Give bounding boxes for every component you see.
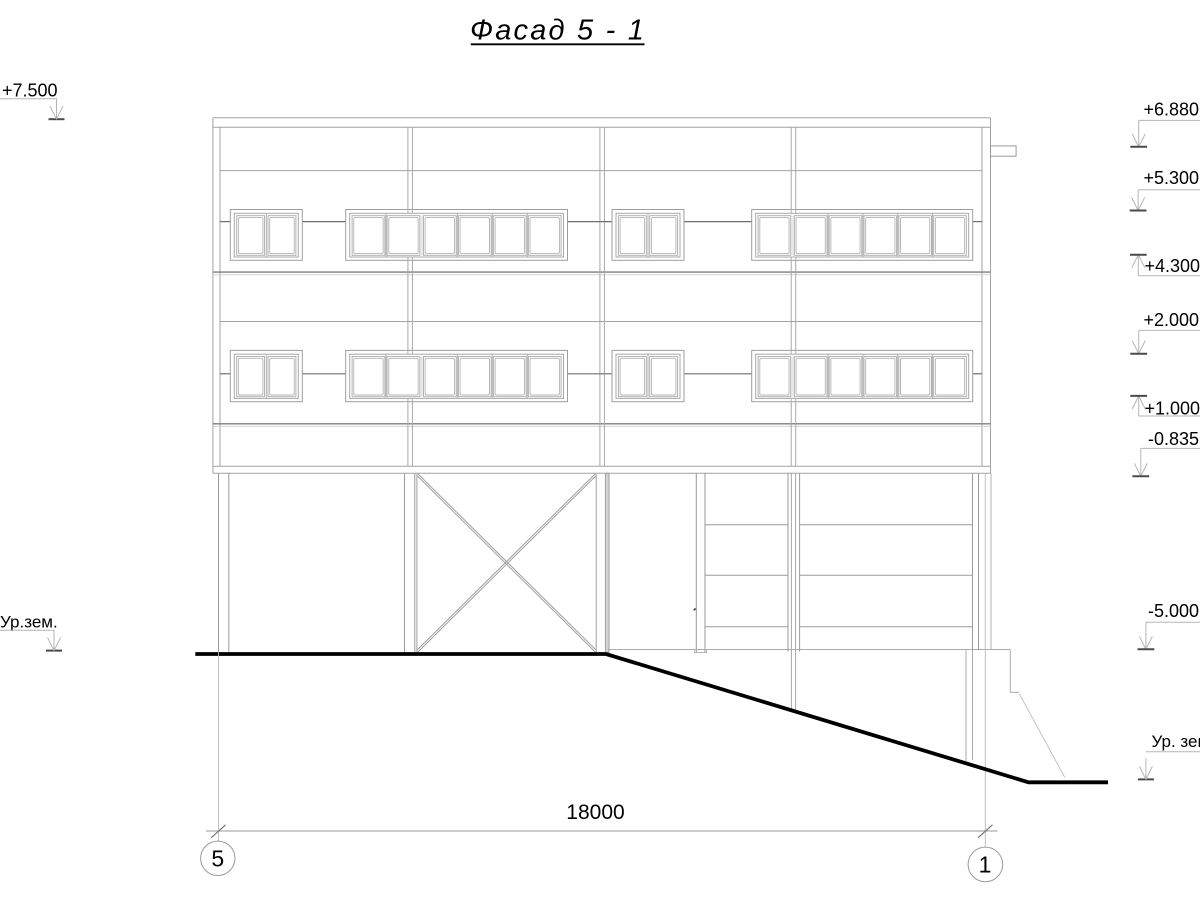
svg-text:Ур. земли: Ур. земли bbox=[1152, 732, 1200, 751]
svg-text:+4.300: +4.300 bbox=[1144, 256, 1200, 276]
svg-text:18000: 18000 bbox=[566, 801, 624, 824]
svg-text:Ур.зем.: Ур.зем. bbox=[0, 613, 58, 632]
svg-text:+2.000: +2.000 bbox=[1143, 310, 1199, 330]
svg-text:Фасад 5 - 1: Фасад 5 - 1 bbox=[470, 14, 646, 46]
svg-text:+5.300: +5.300 bbox=[1143, 168, 1199, 188]
svg-text:-0.835: -0.835 bbox=[1148, 429, 1199, 449]
svg-text:+7.500: +7.500 bbox=[2, 81, 58, 101]
svg-text:-5.000: -5.000 bbox=[1148, 601, 1199, 621]
svg-text:1: 1 bbox=[979, 851, 992, 877]
svg-text:5: 5 bbox=[211, 845, 224, 871]
svg-text:+6.880: +6.880 bbox=[1143, 100, 1199, 120]
